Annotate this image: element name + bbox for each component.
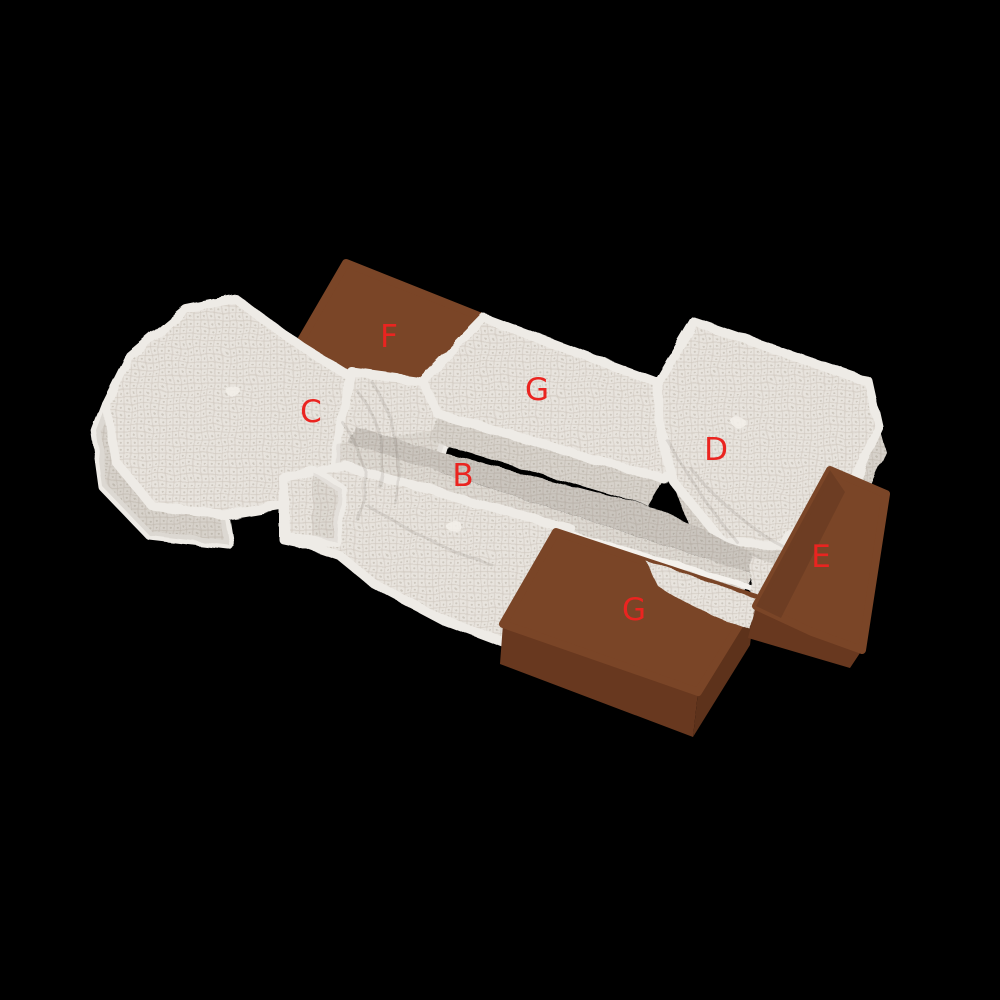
corner-cube [283, 470, 342, 543]
label-g-bottom: G [622, 592, 646, 628]
label-c: C [300, 394, 322, 430]
label-b: B [452, 458, 473, 494]
render-canvas: F G C D B E G [0, 0, 1000, 1000]
block-d-button-bump [731, 417, 745, 427]
label-e: E [811, 539, 831, 575]
front-cushion-button-bump [447, 522, 463, 532]
label-g-top: G [525, 372, 549, 408]
block-c-button-bump [226, 386, 240, 396]
scene-svg: F G C D B E G [0, 0, 1000, 1000]
label-f: F [380, 319, 398, 355]
label-d: D [704, 432, 728, 468]
